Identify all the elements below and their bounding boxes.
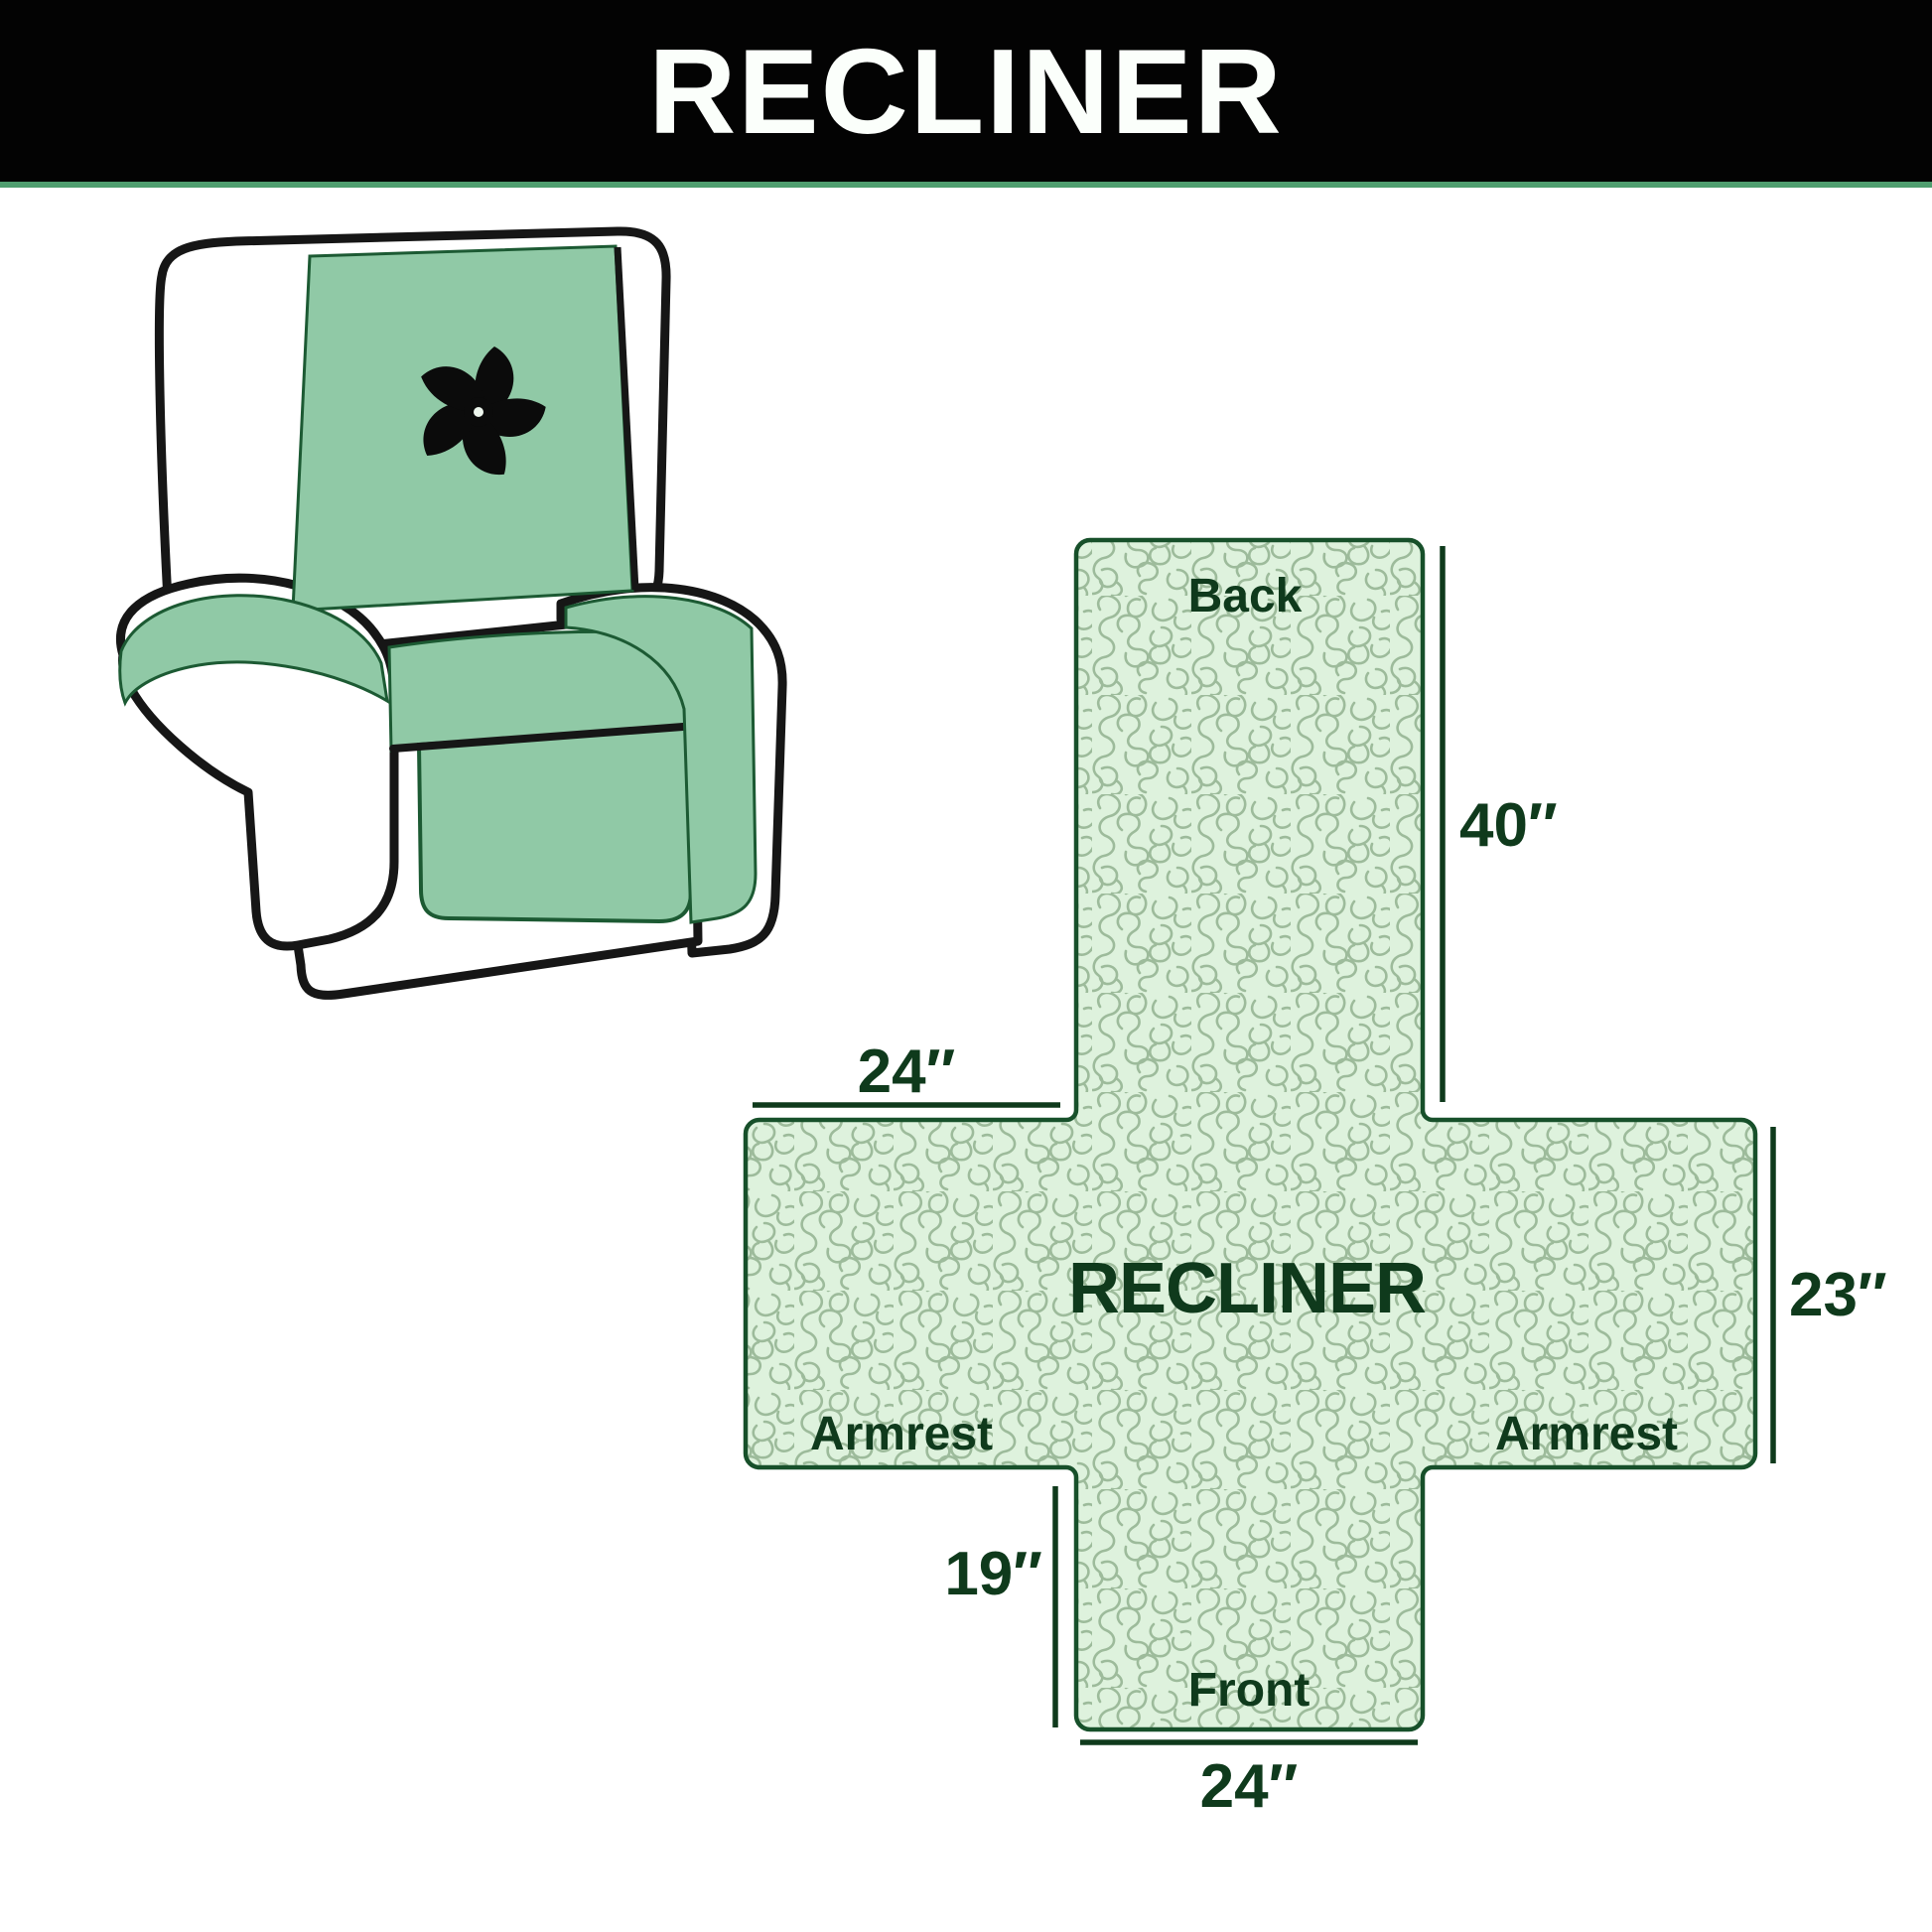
armrest-top-width-dim-label: 24″ [858, 1037, 956, 1106]
chair-illustration [120, 231, 782, 995]
armrest-right-label: Armrest [1495, 1408, 1678, 1460]
scene-canvas: Back RECLINER Armrest Armrest Front 40″ … [0, 0, 1932, 1932]
cover-cross-shape [746, 540, 1755, 1729]
page: RECLINER [0, 0, 1932, 1932]
front-width-dim-label: 24″ [1200, 1752, 1299, 1821]
cover-front-skirt [419, 727, 695, 921]
armrest-side-height-dim-label: 23″ [1789, 1261, 1887, 1329]
cover-layout-diagram: Back RECLINER Armrest Armrest Front 40″ … [746, 540, 1887, 1821]
armrest-left-label: Armrest [810, 1408, 993, 1460]
back-section-label: Back [1188, 570, 1303, 622]
back-height-dim-label: 40″ [1459, 791, 1558, 860]
center-recliner-label: RECLINER [1068, 1249, 1426, 1328]
front-section-label: Front [1188, 1664, 1311, 1717]
front-flap-height-dim-label: 19″ [944, 1540, 1042, 1608]
